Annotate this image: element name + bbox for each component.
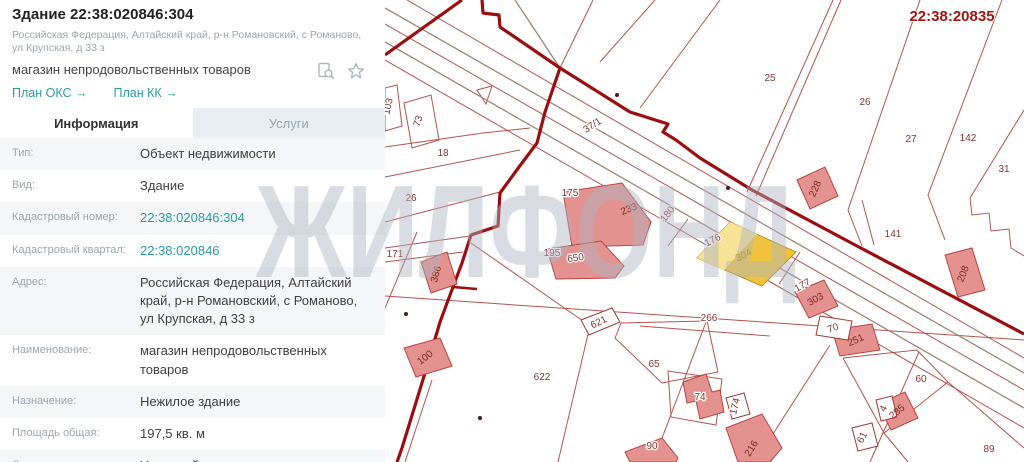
info-row: Кадастровый номер:22:38:020846:304 [0,202,385,234]
info-rows: Тип:Объект недвижимостиВид:ЗданиеКадастр… [0,138,385,462]
parcel-label: 141 [885,229,902,240]
parcel-label: 175 [562,188,579,199]
info-row-value: Объект недвижимости [140,138,373,170]
parcel-label: 266 [701,313,718,324]
plan-kk-link[interactable]: План КК → [113,86,177,100]
parcel-label: 37/1 [581,116,604,136]
info-row-value: 197,5 кв. м [140,418,373,450]
parcel-label: 60 [915,374,927,385]
parcel-label: 31 [998,164,1010,175]
info-row-value: Здание [140,170,373,202]
road-axis-lines-layer [385,0,1024,408]
info-row-value-link[interactable]: 22:38:020846:304 [140,202,373,234]
panel-tabs: Информация Услуги [0,108,385,138]
info-row-value: Нежилое здание [140,386,373,418]
parcel-label: 142 [960,133,977,144]
info-row-label: Статус: [12,450,140,462]
parcel-label: 18 [437,148,449,159]
info-row: Статус:Учтенный [0,450,385,462]
info-row-value-link[interactable]: 22:38:020846 [140,235,373,267]
parcel-label: 25 [764,73,776,84]
object-info-panel: Здание 22:38:020846:304 Российская Федер… [0,0,385,462]
parcel-label: 26 [859,97,871,108]
info-row-label: Кадастровый номер: [12,202,140,223]
info-row-label: Площадь общая: [12,418,140,439]
panel-header: Здание 22:38:020846:304 Российская Федер… [0,0,385,100]
view-plan-icon[interactable] [317,62,335,80]
object-title: Здание 22:38:020846:304 [12,6,373,25]
parcel-label: 90 [646,441,658,452]
parcel-label: 27 [905,134,917,145]
info-row-label: Наименование: [12,335,140,356]
info-row-value: Учтенный [140,450,373,462]
info-row-label: Тип: [12,138,140,159]
tab-information[interactable]: Информация [0,108,193,138]
info-row: Вид:Здание [0,170,385,202]
parcel-label: 171 [387,249,404,260]
parcel-label: 26 [405,193,417,204]
parcel-label: 65 [648,359,660,370]
tab-services[interactable]: Услуги [193,108,386,138]
cadastral-map[interactable]: 10373182617117519565037/1180176177266702… [385,0,1024,462]
info-row-value: магазин непродовольственных товаров [140,335,373,385]
info-row: Наименование:магазин непродовольственных… [0,335,385,385]
plan-oks-link[interactable]: План ОКС → [12,86,87,100]
info-row-label: Назначение: [12,386,140,407]
info-row: Назначение:Нежилое здание [0,386,385,418]
parcel-label: 73 [412,114,426,128]
parcel-label: 180 [659,204,678,224]
parcel-label: 622 [534,372,551,383]
info-row: Тип:Объект недвижимости [0,138,385,170]
parcel-label: 195 [544,248,561,259]
info-row: Кадастровый квартал:22:38:020846 [0,235,385,267]
info-row-value: Российская Федерация, Алтайский край, р-… [140,267,373,336]
info-row: Адрес:Российская Федерация, Алтайский кр… [0,267,385,336]
info-row-label: Кадастровый квартал: [12,235,140,256]
info-row-label: Вид: [12,170,140,191]
parcel-label: 89 [983,444,995,455]
cadastral-map-app: Здание 22:38:020846:304 Российская Федер… [0,0,1024,462]
parcel-label: 74 [694,392,706,403]
info-row: Площадь общая:197,5 кв. м [0,418,385,450]
quarter-number-label: 22:38:20835 [909,8,994,25]
favorite-star-icon[interactable] [347,62,365,80]
object-address-subtitle: Российская Федерация, Алтайский край, р-… [12,29,370,55]
parcel-label: 103 [385,97,396,116]
info-row-label: Адрес: [12,267,140,288]
